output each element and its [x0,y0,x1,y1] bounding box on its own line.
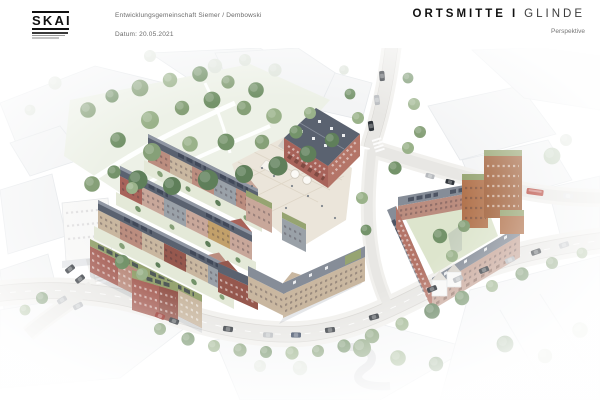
rendering-canvas [0,48,600,400]
presentation-board: SKAI Entwicklungsgemeinschaft Siemer / D… [0,0,600,400]
logo-rule [32,28,69,30]
title-separator: I [512,8,518,20]
logo-tagline-line [32,37,59,39]
logo-wordmark: SKAI [32,14,69,27]
date-label: Datum: 20.05.2021 [115,31,262,38]
skai-logo: SKAI [32,11,69,40]
logo-tagline-line [32,32,68,34]
perspective-rendering [0,48,600,400]
project-name: Entwicklungsgemeinschaft Siemer / Dembow… [115,12,262,19]
board-title: ORTSMITTEIGLINDE [413,8,585,20]
title-right: GLINDE [524,8,585,20]
project-meta: Entwicklungsgemeinschaft Siemer / Dembow… [115,12,262,38]
logo-tagline-line [32,35,65,37]
sheet-subtitle: Perspektive [551,28,585,35]
south-block [248,239,365,324]
title-left: ORTSMITTE [413,8,506,20]
